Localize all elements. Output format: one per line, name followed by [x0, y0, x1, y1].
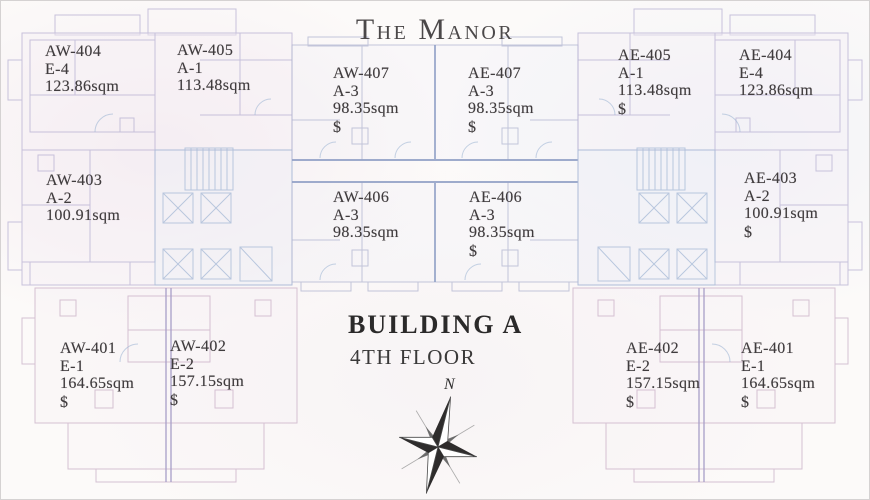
unit-id: AW-401 [60, 340, 134, 358]
unit-id: AW-403 [46, 172, 120, 190]
unit-type: A-3 [468, 83, 534, 101]
unit-type: A-2 [744, 188, 818, 206]
north-label: N [444, 376, 455, 394]
unit-label-ae-406: AE-406 A-3 98.35sqm $ [469, 189, 535, 260]
unit-type: E-4 [739, 65, 813, 83]
unit-id: AE-401 [741, 340, 815, 358]
unit-type: E-4 [45, 61, 119, 79]
unit-label-ae-404: AE-404 E-4 123.86sqm [739, 47, 813, 101]
unit-label-aw-407: AW-407 A-3 98.35sqm $ [333, 65, 399, 136]
unit-type: A-3 [333, 207, 399, 225]
unit-area: 98.35sqm [468, 100, 534, 118]
building-title: BUILDING A [348, 310, 523, 340]
unit-id: AW-405 [177, 42, 251, 60]
unit-id: AE-403 [744, 170, 818, 188]
unit-type: A-3 [469, 207, 535, 225]
unit-area: 123.86sqm [739, 82, 813, 100]
unit-id: AW-404 [45, 43, 119, 61]
unit-id: AE-402 [626, 340, 700, 358]
unit-area: 113.48sqm [618, 82, 692, 100]
unit-price-marker: $ [618, 101, 692, 119]
unit-type: A-2 [46, 190, 120, 208]
unit-area: 98.35sqm [469, 224, 535, 242]
unit-area: 157.15sqm [170, 373, 244, 391]
unit-label-aw-402: AW-402 E-2 157.15sqm $ [170, 338, 244, 409]
unit-label-ae-402: AE-402 E-2 157.15sqm $ [626, 340, 700, 411]
unit-area: 123.86sqm [45, 78, 119, 96]
unit-price-marker: $ [741, 394, 815, 412]
compass-rose-icon [388, 387, 490, 500]
unit-id: AE-405 [618, 47, 692, 65]
unit-area: 157.15sqm [626, 375, 700, 393]
unit-label-aw-406: AW-406 A-3 98.35sqm [333, 189, 399, 243]
unit-type: A-1 [177, 60, 251, 78]
unit-area: 164.65sqm [60, 375, 134, 393]
unit-id: AW-402 [170, 338, 244, 356]
unit-id: AE-407 [468, 65, 534, 83]
unit-label-ae-407: AE-407 A-3 98.35sqm $ [468, 65, 534, 136]
left-core-plan [155, 148, 292, 285]
unit-type: E-2 [170, 356, 244, 374]
unit-label-aw-405: AW-405 A-1 113.48sqm [177, 42, 251, 96]
unit-price-marker: $ [170, 392, 244, 410]
unit-label-aw-404: AW-404 E-4 123.86sqm [45, 43, 119, 97]
unit-type: E-2 [626, 358, 700, 376]
floor-title: 4TH FLOOR [350, 345, 476, 370]
unit-area: 100.91sqm [46, 207, 120, 225]
unit-id: AW-406 [333, 189, 399, 207]
unit-id: AW-407 [333, 65, 399, 83]
unit-label-ae-401: AE-401 E-1 164.65sqm $ [741, 340, 815, 411]
unit-type: E-1 [60, 358, 134, 376]
unit-id: AE-406 [469, 189, 535, 207]
unit-price-marker: $ [469, 243, 535, 261]
unit-area: 100.91sqm [744, 205, 818, 223]
unit-price-marker: $ [60, 394, 134, 412]
unit-price-marker: $ [744, 224, 818, 242]
unit-area: 164.65sqm [741, 375, 815, 393]
unit-area: 98.35sqm [333, 224, 399, 242]
right-core-plan [578, 148, 715, 285]
unit-id: AE-404 [739, 47, 813, 65]
unit-label-aw-403: AW-403 A-2 100.91sqm [46, 172, 120, 226]
unit-price-marker: $ [626, 394, 700, 412]
floorplan-page: TheManor AW-404 E-4 123.86sqm AW-405 A-1… [0, 0, 870, 500]
unit-area: 113.48sqm [177, 77, 251, 95]
unit-label-aw-401: AW-401 E-1 164.65sqm $ [60, 340, 134, 411]
unit-label-ae-403: AE-403 A-2 100.91sqm $ [744, 170, 818, 241]
unit-label-ae-405: AE-405 A-1 113.48sqm $ [618, 47, 692, 118]
title-word-manor: Manor [418, 13, 514, 47]
page-title: TheManor [0, 13, 870, 47]
unit-price-marker: $ [468, 119, 534, 137]
unit-area: 98.35sqm [333, 100, 399, 118]
unit-price-marker: $ [333, 119, 399, 137]
unit-type: A-3 [333, 83, 399, 101]
unit-type: E-1 [741, 358, 815, 376]
unit-type: A-1 [618, 65, 692, 83]
title-word-the: The [356, 13, 409, 47]
